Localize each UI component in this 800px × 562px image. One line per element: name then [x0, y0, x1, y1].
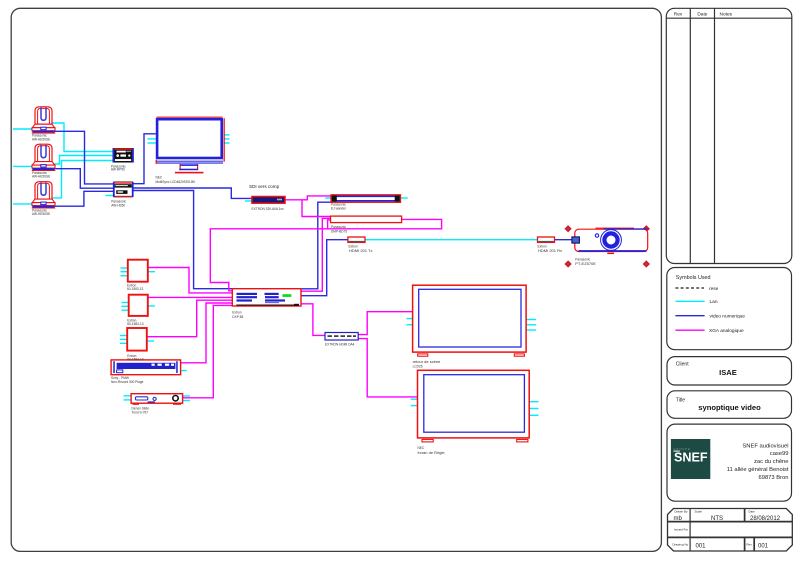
svg-text:MultiSync LCD4620SSS-BK: MultiSync LCD4620SSS-BK	[156, 180, 197, 184]
svg-text:DMP-BD75: DMP-BD75	[331, 229, 347, 233]
svg-text:PT-EZ570E: PT-EZ570E	[575, 261, 596, 266]
svg-text:AW-RP50: AW-RP50	[111, 168, 125, 172]
svg-text:Scale: Scale	[695, 510, 703, 514]
svg-text:LCD26: LCD26	[413, 365, 423, 369]
svg-text:Tund S-767: Tund S-767	[132, 411, 149, 415]
svg-text:zac du chêne: zac du chêne	[754, 459, 788, 465]
svg-text:Rev: Rev	[674, 11, 683, 17]
svg-text:ISAE: ISAE	[719, 368, 737, 377]
svg-text:AW-HS50: AW-HS50	[111, 203, 125, 207]
svg-text:video numerique: video numerique	[710, 314, 746, 320]
svg-text:synoptique video: synoptique video	[698, 403, 761, 412]
svg-text:écran de Régie: écran de Régie	[418, 450, 446, 455]
svg-text:SNEF: SNEF	[674, 451, 708, 465]
svg-text:60-1583-13: 60-1583-13	[127, 322, 144, 326]
svg-text:Client: Client	[676, 361, 689, 367]
svg-text:SDI vers comp: SDI vers comp	[249, 184, 280, 189]
svg-text:AW-HE50SE: AW-HE50SE	[32, 175, 50, 179]
svg-text:Date: Date	[749, 510, 756, 514]
svg-text:Neo-Record 500 Plage: Neo-Record 500 Plage	[111, 380, 144, 384]
svg-text:Issued For: Issued For	[674, 528, 688, 532]
svg-text:EXTRON HDMI DA4: EXTRON HDMI DA4	[325, 342, 355, 346]
svg-text:HDMI 201 Tx: HDMI 201 Tx	[349, 248, 373, 253]
svg-text:AW-HE50SE: AW-HE50SE	[32, 212, 50, 216]
svg-text:Lan: Lan	[710, 299, 718, 305]
svg-text:Drawn By: Drawn By	[675, 510, 689, 514]
svg-text:28/08/2012: 28/08/2012	[750, 516, 781, 522]
svg-text:XGA analogique: XGA analogique	[709, 328, 744, 334]
svg-text:001: 001	[696, 544, 707, 550]
svg-text:Extron: Extron	[232, 310, 241, 314]
svg-text:SNEF audiovisuel: SNEF audiovisuel	[742, 443, 788, 449]
svg-text:EXTRON SDI-AVA 1xx: EXTRON SDI-AVA 1xx	[252, 207, 285, 211]
svg-text:Drawing No: Drawing No	[673, 543, 689, 547]
svg-text:NEC: NEC	[156, 176, 163, 180]
svg-text:Notes: Notes	[720, 11, 733, 17]
svg-text:AW-HE50SE: AW-HE50SE	[32, 137, 50, 141]
svg-text:60-1583-13: 60-1583-13	[127, 287, 144, 291]
svg-text:11 allée général Benoist: 11 allée général Benoist	[727, 467, 789, 473]
svg-text:69873 Bron: 69873 Bron	[759, 475, 789, 481]
svg-text:mb: mb	[674, 516, 683, 522]
svg-text:retour de scène: retour de scène	[413, 359, 442, 364]
svg-text:Title: Title	[676, 398, 685, 404]
svg-text:DXP 88: DXP 88	[232, 315, 243, 319]
svg-text:001: 001	[758, 544, 769, 550]
svg-text:rese: rese	[709, 286, 719, 292]
svg-text:Rev: Rev	[747, 543, 753, 547]
svg-text:Symbols Used: Symbols Used	[676, 275, 711, 281]
svg-text:Panasonic: Panasonic	[331, 225, 346, 229]
svg-text:60-1583-13: 60-1583-13	[127, 357, 144, 361]
svg-text:case99: case99	[770, 451, 789, 457]
svg-text:Date: Date	[697, 11, 707, 17]
svg-text:HDMI 201 Rx: HDMI 201 Rx	[538, 248, 562, 253]
svg-text:NTS: NTS	[711, 516, 723, 522]
svg-text:EJ wander: EJ wander	[331, 207, 347, 211]
